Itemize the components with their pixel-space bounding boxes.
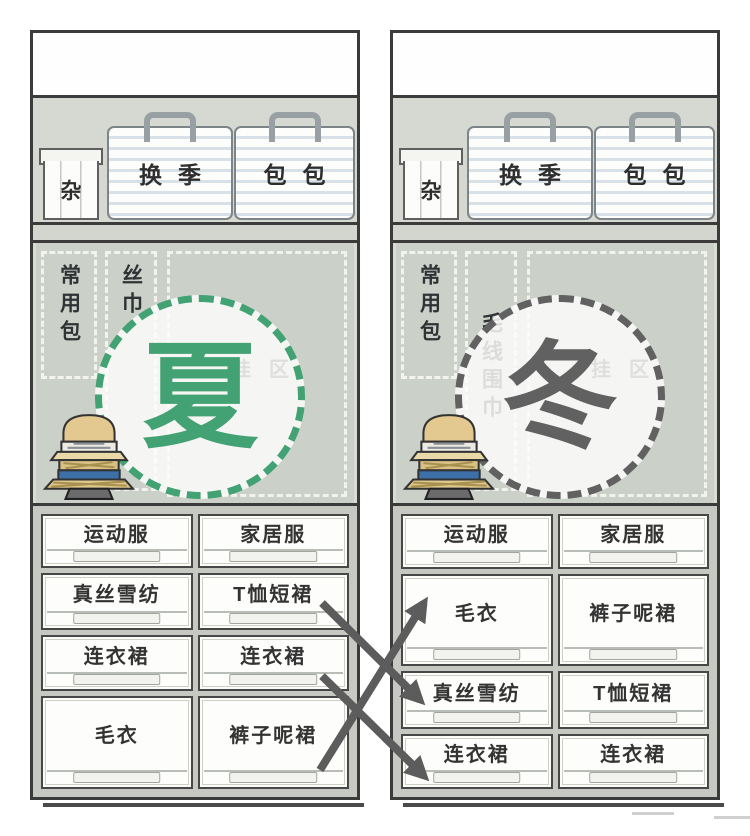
drawer-section: 运动服 家居服 毛衣 裤子呢裙 真丝雪纺 T恤短裙 连衣裙 连衣裙 [393,506,717,797]
drawer: 连衣裙 [401,734,553,789]
frequent-bags-zone: 常用包 [401,251,457,379]
drawer-label: 裤子呢裙 [229,719,317,748]
drawer: 连衣裙 [558,734,710,789]
season-character: 夏 [142,339,258,455]
bags-box-label: 包包 [236,128,353,218]
seasonal-storage-box: 换季 [107,126,233,220]
misc-box-label: 杂 [61,175,82,205]
drawer-label: 连衣裙 [240,640,306,669]
drawer-label: 运动服 [84,518,150,547]
top-shelf-empty [393,33,717,98]
hanging-section: 常用包 毛线围巾 挂区 冬 [393,243,717,506]
drawer-label: 真丝雪纺 [433,677,521,706]
drawer: 裤子呢裙 [198,696,350,789]
seasonal-box-label: 换季 [469,128,591,218]
drawer-label: 真丝雪纺 [73,578,161,607]
drawer: 运动服 [41,514,193,568]
drawer-label: 毛衣 [95,719,139,748]
drawer-label: 连衣裙 [84,640,150,669]
shelf-divider [33,222,357,243]
top-shelf-empty [33,33,357,98]
watermark-artifact [632,812,674,815]
drawer-label: 连衣裙 [600,738,666,767]
misc-box-label: 杂 [421,175,442,205]
drawer-label: T恤短裙 [233,578,313,607]
drawer: 家居服 [198,514,350,568]
hat-stack-illustration [399,411,499,501]
drawer-label: 家居服 [600,518,666,547]
drawer: 毛衣 [401,574,553,666]
misc-box-body: 杂 [403,161,459,220]
shelf-divider [393,222,717,243]
drawer-label: 毛衣 [455,597,499,626]
hat-stack-icon [399,411,499,501]
hat-stack-icon [39,411,139,501]
storage-shelf: 杂 换季 包包 [33,98,357,222]
frequent-bags-label: 常用包 [417,264,440,376]
drawer: 毛衣 [41,696,193,789]
drawer: 真丝雪纺 [401,671,553,729]
misc-storage-box: 杂 [403,148,459,220]
storage-shelf: 杂 换季 包包 [393,98,717,222]
misc-box-body: 杂 [43,161,99,220]
drawer-section: 运动服 家居服 真丝雪纺 T恤短裙 连衣裙 连衣裙 毛衣 裤子呢裙 [33,506,357,797]
drawer: 裤子呢裙 [558,574,710,666]
drawer: 连衣裙 [198,635,350,691]
drawer: 家居服 [558,514,710,569]
bags-box-label: 包包 [596,128,713,218]
seasonal-storage-box: 换季 [467,126,593,220]
bags-storage-box: 包包 [594,126,715,220]
seasonal-box-label: 换季 [109,128,231,218]
drawer-label: 家居服 [240,518,306,547]
drawer-label: 连衣裙 [444,738,510,767]
frequent-bags-zone: 常用包 [41,251,97,379]
frequent-bags-label: 常用包 [57,264,80,376]
drawer: 运动服 [401,514,553,569]
bags-storage-box: 包包 [234,126,355,220]
closet-summer: 杂 换季 包包 常用包 丝巾 挂区 夏 [30,30,360,800]
drawer-label: T恤短裙 [593,677,673,706]
hanging-section: 常用包 丝巾 挂区 夏 [33,243,357,506]
drawer: T恤短裙 [558,671,710,729]
misc-storage-box: 杂 [43,148,99,220]
watermark-artifact [714,816,750,819]
season-character: 冬 [502,339,618,455]
hat-stack-illustration [39,411,139,501]
drawer: 连衣裙 [41,635,193,691]
drawer: T恤短裙 [198,573,350,630]
drawer-label: 裤子呢裙 [589,597,677,626]
closet-winter: 杂 换季 包包 常用包 毛线围巾 挂区 冬 [390,30,720,800]
drawer-label: 运动服 [444,518,510,547]
drawer: 真丝雪纺 [41,573,193,630]
